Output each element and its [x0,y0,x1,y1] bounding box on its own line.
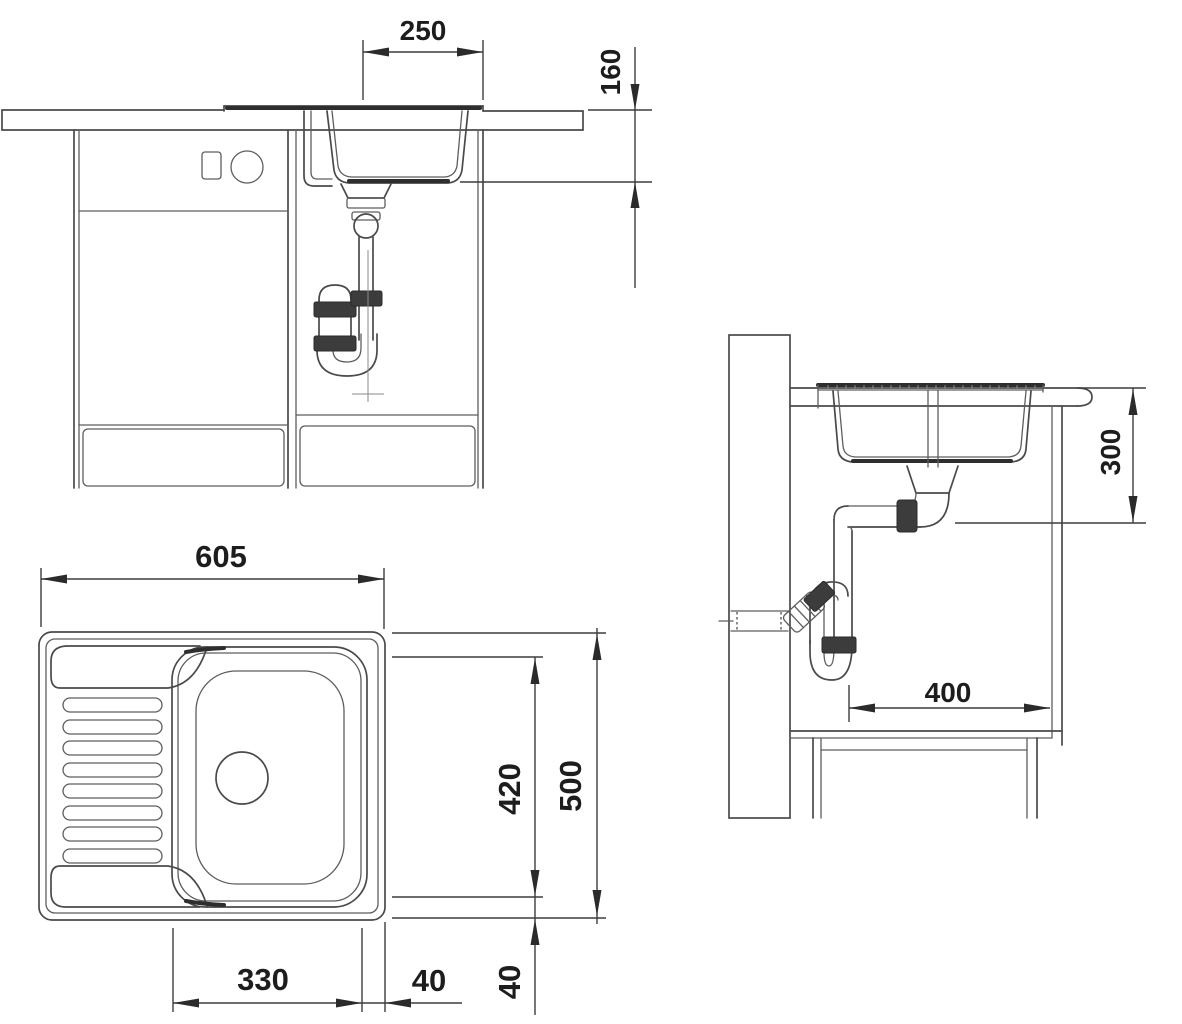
hose-clamp [314,302,356,317]
hose-clamp [314,336,356,351]
plinth-panel-left [83,429,284,486]
dimension-300: 300 [955,388,1146,523]
adapter-nut [803,581,835,613]
dimension-605: 605 [41,539,384,629]
drain-funnel [341,184,391,198]
sink-inner-frame [46,639,378,913]
dimension-420: 420 [492,657,540,1015]
drain-trap-front [314,184,391,402]
hose-clamp [351,291,382,306]
control-knob-circle [231,151,263,183]
countertop-side [790,388,1092,406]
bowl-bottom [196,671,344,884]
sink-technical-drawing: 250 160 [0,0,1182,1024]
dim-label-330: 330 [237,962,289,997]
dim-label-420: 420 [492,763,527,815]
drain-nut [347,198,385,208]
front-elevation-view: 250 160 [2,15,652,488]
cabinet-side [790,406,1062,818]
side-section-view: 300 400 [719,335,1146,818]
bowl-inner-rim [178,653,361,901]
compression-nut [897,500,917,532]
drainboard-bottom-lip [51,866,207,907]
wall [729,335,790,818]
dimension-40-horizontal: 40 [385,963,446,1008]
dimension-250: 250 [363,15,483,100]
stub-pipe-cap [319,285,351,300]
dimension-500: 500 [553,628,602,924]
dim-label-300: 300 [1095,429,1126,476]
sink-rim-front [224,106,483,111]
ball-joint [354,214,378,238]
top-plan-view: 605 420 40 500 [39,539,606,1015]
bowl-outer-rim [172,647,367,907]
drainboard-ribs [63,698,162,863]
dim-label-40-horizontal: 40 [412,963,446,998]
drain-hole [216,752,268,804]
dim-label-160: 160 [595,49,626,96]
countertop-front [2,110,583,130]
control-button-square [202,152,221,179]
dimension-40-vertical: 40 [492,919,540,999]
technical-drawing-page: 250 160 [0,0,1182,1024]
drainboard-top-lip [51,646,207,688]
dim-label-605: 605 [195,539,247,574]
plinth-panel-right [300,426,475,486]
dimension-160: 160 [460,47,652,288]
drain-trap-side [782,466,958,680]
dim-label-500: 500 [553,760,588,812]
sink-bowl-front-section [304,111,468,186]
dimension-400: 400 [849,677,1050,722]
sink-bowl-side-section [833,391,1031,467]
dim-label-250: 250 [400,15,447,46]
dim-label-40-vertical: 40 [492,965,527,999]
drain-funnel-side [907,466,958,493]
dim-label-400: 400 [925,677,972,708]
hose-clamp [822,637,856,653]
counter-bullnose [1077,388,1092,406]
